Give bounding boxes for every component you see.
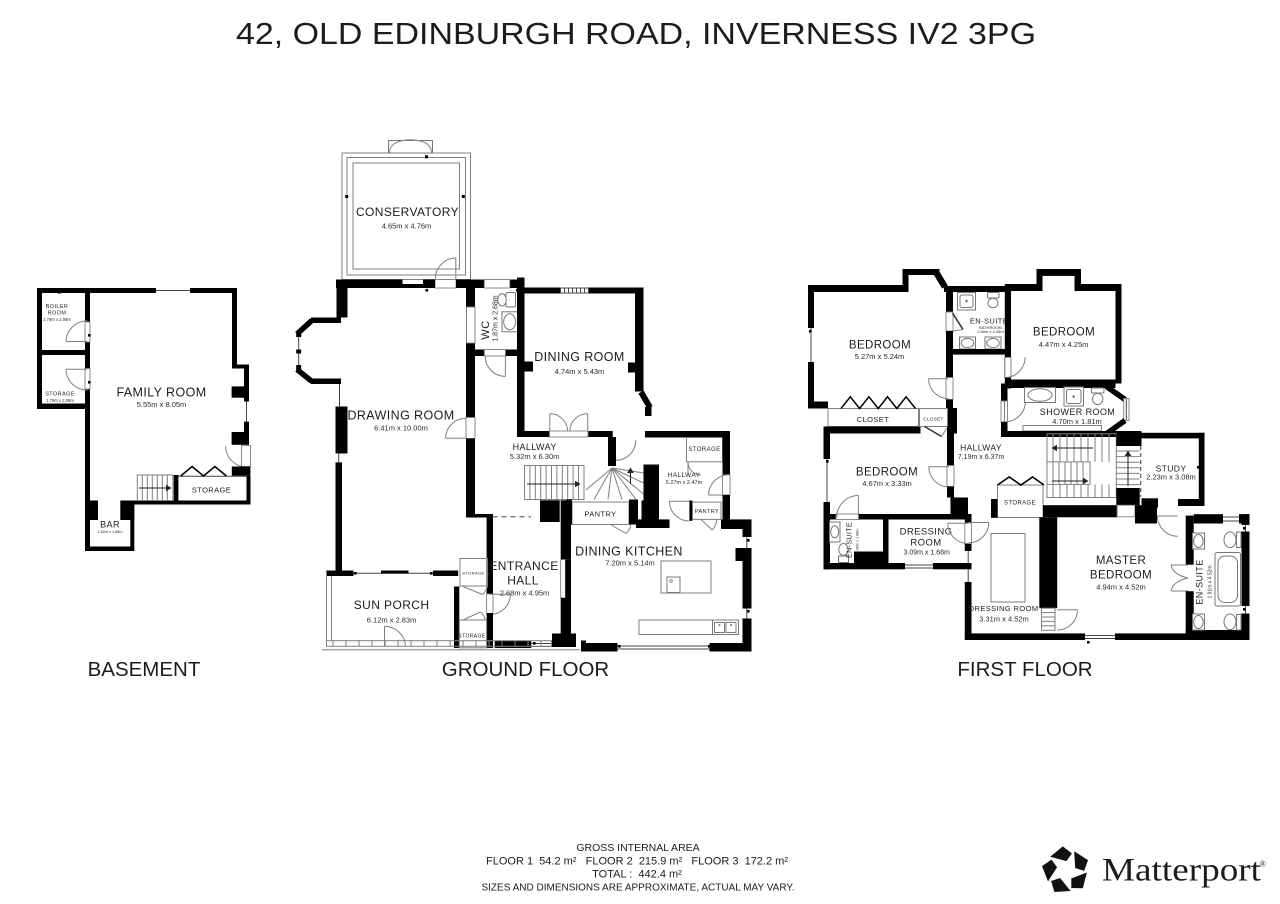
svg-text:TOTAL : 442.4 m²: TOTAL : 442.4 m²	[592, 869, 682, 881]
svg-text:Matterport: Matterport	[1102, 853, 1261, 889]
svg-text:4.70m x 1.81m: 4.70m x 1.81m	[1052, 417, 1102, 426]
svg-text:HALLWAY: HALLWAY	[513, 442, 557, 452]
svg-text:BEDROOM: BEDROOM	[1033, 327, 1095, 339]
svg-text:CLOSET: CLOSET	[923, 417, 943, 422]
svg-text:SIZES AND DIMENSIONS ARE APPRO: SIZES AND DIMENSIONS ARE APPROXIMATE, AC…	[481, 883, 794, 894]
svg-text:STORAGE: STORAGE	[688, 447, 720, 453]
svg-text:4.74m x 5.43m: 4.74m x 5.43m	[555, 367, 605, 376]
svg-text:1.79m x 2.09m: 1.79m x 2.09m	[46, 398, 74, 403]
svg-text:6.41m x 10.00m: 6.41m x 10.00m	[374, 424, 428, 433]
svg-text:BOILER: BOILER	[46, 304, 69, 310]
svg-text:BEDROOM: BEDROOM	[849, 340, 911, 352]
svg-text:4.94m x 4.52m: 4.94m x 4.52m	[1096, 583, 1146, 592]
svg-text:BEDROOM: BEDROOM	[1090, 570, 1152, 582]
svg-text:CLOSET: CLOSET	[857, 415, 889, 424]
svg-text:STORAGE: STORAGE	[192, 486, 231, 495]
svg-text:6.12m x 2.83m: 6.12m x 2.83m	[367, 616, 417, 625]
svg-text:2.56m x 2.28m: 2.56m x 2.28m	[977, 329, 1004, 334]
svg-text:FAMILY ROOM: FAMILY ROOM	[116, 386, 206, 400]
svg-text:DRESSING ROOM: DRESSING ROOM	[969, 604, 1039, 613]
svg-text:ENTRANCE: ENTRANCE	[489, 559, 558, 573]
svg-text:FIRST FLOOR: FIRST FLOOR	[957, 658, 1092, 681]
svg-text:STORAGE: STORAGE	[45, 392, 75, 398]
svg-text:2.23m x 3.08m: 2.23m x 3.08m	[1146, 473, 1196, 482]
svg-text:HALL: HALL	[507, 574, 539, 588]
svg-text:GROSS INTERNAL AREA: GROSS INTERNAL AREA	[576, 842, 699, 854]
svg-text:BEDROOM: BEDROOM	[856, 467, 918, 479]
svg-text:HALLWAY: HALLWAY	[668, 472, 701, 479]
svg-text:BAR: BAR	[100, 520, 120, 530]
svg-text:3.31m x 4.52m: 3.31m x 4.52m	[979, 614, 1029, 623]
svg-text:ROOM: ROOM	[910, 538, 941, 549]
svg-text:®: ®	[1260, 859, 1267, 869]
svg-text:ROOM: ROOM	[48, 311, 67, 317]
svg-text:7.19m x 6.37m: 7.19m x 6.37m	[958, 454, 1004, 461]
svg-text:5.55m x 8.05m: 5.55m x 8.05m	[137, 400, 187, 409]
svg-text:5.32m x 6.30m: 5.32m x 6.30m	[510, 452, 560, 461]
svg-text:MASTER: MASTER	[1096, 555, 1146, 567]
svg-text:SUN PORCH: SUN PORCH	[354, 598, 430, 612]
svg-text:STORAGE: STORAGE	[1004, 501, 1036, 507]
svg-text:1.79m x 2.09m: 1.79m x 2.09m	[43, 317, 71, 322]
svg-text:GROUND FLOOR: GROUND FLOOR	[442, 658, 609, 681]
svg-text:WC: WC	[480, 320, 492, 339]
svg-text:BASEMENT: BASEMENT	[88, 658, 201, 681]
svg-text:7.20m x 5.14m: 7.20m x 5.14m	[605, 559, 655, 568]
svg-text:5.27m x 2.47m: 5.27m x 2.47m	[666, 480, 703, 486]
svg-text:FLOOR 1 54.2 m² FLOOR 2 21: FLOOR 1 54.2 m² FLOOR 2 215.9 m² FLOOR 3…	[486, 856, 788, 868]
svg-text:5.27m x 5.24m: 5.27m x 5.24m	[855, 352, 905, 361]
svg-text:HALLWAY: HALLWAY	[960, 443, 1002, 453]
svg-text:CONSERVATORY: CONSERVATORY	[356, 205, 459, 219]
svg-text:2.09m x 1.86m: 2.09m x 1.86m	[856, 528, 860, 553]
svg-text:STORAGE: STORAGE	[458, 634, 485, 640]
svg-text:1.91m x 4.52m: 1.91m x 4.52m	[1208, 565, 1214, 598]
svg-text:DRESSING: DRESSING	[900, 527, 953, 538]
svg-text:STORAGE: STORAGE	[462, 571, 484, 576]
svg-text:DRAWING ROOM: DRAWING ROOM	[347, 409, 454, 423]
svg-text:PANTRY: PANTRY	[584, 510, 616, 519]
svg-text:42, OLD EDINBURGH ROAD, INVERN: 42, OLD EDINBURGH ROAD, INVERNESS IV2 3P…	[236, 16, 1036, 51]
svg-text:PANTRY: PANTRY	[695, 509, 719, 515]
svg-text:3.09m x 1.68m: 3.09m x 1.68m	[904, 550, 950, 557]
svg-text:1.82m x 1.88m: 1.82m x 1.88m	[97, 530, 122, 534]
svg-text:4.67m x 3.33m: 4.67m x 3.33m	[862, 479, 912, 488]
svg-text:DINING KITCHEN: DINING KITCHEN	[575, 545, 683, 559]
svg-text:SHOWER ROOM: SHOWER ROOM	[1040, 407, 1115, 417]
svg-text:DINING ROOM: DINING ROOM	[534, 350, 625, 364]
svg-text:4.47m x 4.25m: 4.47m x 4.25m	[1039, 340, 1089, 349]
svg-text:EN-SUITE: EN-SUITE	[847, 522, 854, 558]
svg-text:4.65m x 4.76m: 4.65m x 4.76m	[382, 222, 432, 231]
svg-text:EN-SUITE: EN-SUITE	[1195, 559, 1205, 604]
svg-text:2.68m x 4.95m: 2.68m x 4.95m	[500, 589, 550, 598]
